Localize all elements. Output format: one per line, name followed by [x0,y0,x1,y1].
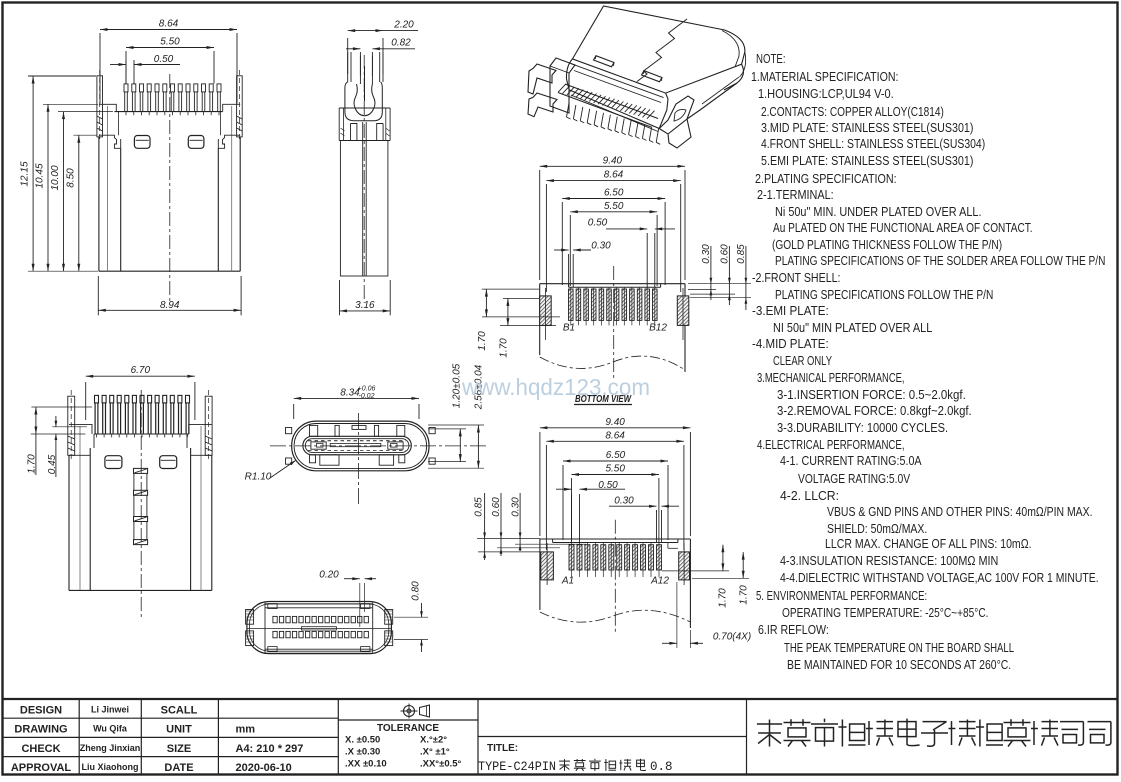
svg-text:1.70: 1.70 [739,585,750,605]
svg-text:OPERATING TEMPERATURE: -25°C~+: OPERATING TEMPERATURE: -25°C~+85°C. [782,606,989,620]
svg-text:5.50: 5.50 [605,464,625,475]
svg-text:0.70(4X): 0.70(4X) [713,631,751,642]
svg-text:5.EMI PLATE: STAINLESS STEEL(S: 5.EMI PLATE: STAINLESS STEEL(SUS301) [761,154,973,168]
svg-text:VOLTAGE RATING:5.0V: VOLTAGE RATING:5.0V [798,472,911,486]
svg-text:4.FRONT SHELL: STAINLESS STEEL: 4.FRONT SHELL: STAINLESS STEEL(SUS304) [761,137,985,151]
svg-text:TYPE-C24PIN: TYPE-C24PIN [478,760,556,774]
svg-text:SHIELD: 50mΩ/MAX.: SHIELD: 50mΩ/MAX. [827,522,927,536]
svg-text:PLATING SPECIFICATIONS FOLLOW: PLATING SPECIFICATIONS FOLLOW THE P/N [775,288,993,302]
svg-text:A4: 210 * 297: A4: 210 * 297 [236,743,304,755]
svg-text:TITLE:: TITLE: [487,743,518,754]
svg-text:3-1.INSERTION FORCE: 0.5~2.0kg: 3-1.INSERTION FORCE: 0.5~2.0kgf. [777,388,966,402]
svg-text:4-3.INSULATION RESISTANCE: 100: 4-3.INSULATION RESISTANCE: 100MΩ MIN [780,554,998,568]
svg-text:5. ENVIRONMENTAL PERFORMANCE:: 5. ENVIRONMENTAL PERFORMANCE: [756,589,927,603]
svg-text:A12: A12 [650,575,669,586]
svg-text:8.64: 8.64 [159,19,179,30]
svg-text:(GOLD PLATING THICKNESS FOLLOW: (GOLD PLATING THICKNESS FOLLOW THE P/N) [772,238,1002,252]
svg-text:2.CONTACTS: COPPER ALLOY(C1814: 2.CONTACTS: COPPER ALLOY(C1814) [761,105,944,119]
svg-text:Ni 50u" MIN. UNDER PLATED OVER: Ni 50u" MIN. UNDER PLATED OVER ALL. [775,205,982,219]
svg-text:NI 50u" MIN PLATED OVER ALL: NI 50u" MIN PLATED OVER ALL [773,321,932,335]
svg-text:+0.06: +0.06 [358,386,376,393]
svg-text:9.40: 9.40 [603,155,623,166]
svg-text:2-1.TERMINAL:: 2-1.TERMINAL: [757,188,834,202]
svg-text:PLATING SPECIFICATIONS OF THE: PLATING SPECIFICATIONS OF THE SOLDER ARE… [775,254,1105,268]
svg-text:DRAWING: DRAWING [14,724,67,736]
svg-text:2020-06-10: 2020-06-10 [236,762,292,774]
svg-text:6.IR REFLOW:: 6.IR REFLOW: [758,623,829,637]
svg-text:CLEAR ONLY: CLEAR ONLY [773,354,832,368]
svg-text:3-3.DURABILITY: 10000 CYCLES.: 3-3.DURABILITY: 10000 CYCLES. [777,421,948,435]
svg-text:Liu Xiaohong: Liu Xiaohong [82,762,139,772]
svg-text:0.50: 0.50 [154,54,174,65]
svg-text:1.70: 1.70 [718,588,729,608]
svg-text:BE MAINTAINED FOR 10 SECONDS A: BE MAINTAINED FOR 10 SECONDS AT 260°C. [787,658,1011,672]
svg-text:UNIT: UNIT [166,724,192,736]
svg-text:-4.MID PLATE:: -4.MID PLATE: [752,337,829,351]
svg-text:3.16: 3.16 [355,300,375,311]
svg-text:0.45: 0.45 [47,454,58,474]
svg-text:0.50: 0.50 [598,480,618,491]
svg-text:0.60: 0.60 [719,244,730,264]
svg-text:8.94: 8.94 [160,300,180,311]
svg-text:.X ±0.30: .X ±0.30 [345,747,380,758]
svg-text:DATE: DATE [164,762,193,774]
svg-text:2.PLATING SPECIFICATION:: 2.PLATING SPECIFICATION: [755,172,897,186]
svg-text:NOTE:: NOTE: [756,52,786,66]
svg-text:DESIGN: DESIGN [20,705,62,717]
svg-text:.X° ±1°: .X° ±1° [420,747,450,758]
svg-text:-0.02: -0.02 [359,393,375,400]
svg-text:R1.10: R1.10 [245,472,272,483]
svg-text:5.50: 5.50 [160,37,180,48]
svg-text:0.85: 0.85 [474,497,485,517]
svg-text:3.MID PLATE: STAINLESS STEEL(S: 3.MID PLATE: STAINLESS STEEL(SUS301) [761,121,973,135]
svg-text:1.HOUSING:LCP,UL94 V-0.: 1.HOUSING:LCP,UL94 V-0. [758,87,894,101]
svg-text:B1: B1 [563,323,575,334]
svg-text:4.ELECTRICAL PERFORMANCE,: 4.ELECTRICAL PERFORMANCE, [757,438,905,452]
svg-text:6.50: 6.50 [604,188,624,199]
svg-text:B12: B12 [649,323,667,334]
svg-text:6.70: 6.70 [131,365,151,376]
svg-text:VBUS & GND PINS AND OTHER PINS: VBUS & GND PINS AND OTHER PINS: 40mΩ/PIN… [827,505,1093,519]
svg-text:APPROVAL: APPROVAL [11,762,72,774]
svg-text:-2.FRONT SHELL:: -2.FRONT SHELL: [752,271,841,285]
svg-text:mm: mm [236,724,256,736]
svg-text:Wu Qifa: Wu Qifa [93,724,128,734]
svg-text:3-2.REMOVAL FORCE: 0.8kgf~2.0k: 3-2.REMOVAL FORCE: 0.8kgf~2.0kgf. [777,404,972,418]
svg-text:CHECK: CHECK [21,743,60,755]
svg-text:Li Jinwei: Li Jinwei [91,705,129,715]
svg-text:.XX ±0.10: .XX ±0.10 [345,759,387,770]
svg-text:0.30: 0.30 [701,244,712,264]
svg-text:0.8: 0.8 [650,760,673,774]
svg-text:10.45: 10.45 [35,163,46,188]
svg-text:X. ±0.50: X. ±0.50 [345,735,380,746]
svg-text:0.85: 0.85 [736,244,747,264]
svg-text:0.30: 0.30 [591,240,611,251]
svg-text:0.30: 0.30 [614,496,634,507]
svg-text:1.20±0.05: 1.20±0.05 [452,363,463,408]
svg-text:5.50: 5.50 [604,201,624,212]
svg-text:1.70: 1.70 [27,454,38,474]
svg-text:Au PLATED ON THE FUNCTIONAL AR: Au PLATED ON THE FUNCTIONAL AREA OF CONT… [773,221,1033,235]
svg-text:LLCR MAX. CHANGE OF ALL PINS:: LLCR MAX. CHANGE OF ALL PINS: 10mΩ. [825,537,1032,551]
svg-text:8.64: 8.64 [604,170,624,181]
svg-text:6.50: 6.50 [606,450,626,461]
svg-text:-3.EMI PLATE:: -3.EMI PLATE: [752,304,829,318]
svg-text:0.80: 0.80 [411,581,422,601]
svg-text:X.°±2°: X.°±2° [420,735,447,746]
svg-text:www.hqdz123.com: www.hqdz123.com [461,374,650,400]
svg-text:0.82: 0.82 [391,38,411,49]
svg-text:9.40: 9.40 [605,417,625,428]
svg-text:1.MATERIAL SPECIFICATION:: 1.MATERIAL SPECIFICATION: [751,70,899,84]
svg-text:Zheng Jinxian: Zheng Jinxian [80,743,141,753]
svg-text:4-1. CURRENT RATING:5.0A: 4-1. CURRENT RATING:5.0A [780,454,922,468]
svg-text:3.MECHANICAL PERFORMANCE,: 3.MECHANICAL PERFORMANCE, [757,371,905,385]
svg-text:12.15: 12.15 [20,161,31,186]
svg-text:0.50: 0.50 [588,218,608,229]
svg-text:10.00: 10.00 [50,165,61,190]
svg-text:.XX°±0.5°: .XX°±0.5° [420,759,462,770]
svg-text:SCALL: SCALL [161,705,198,717]
svg-text:8.50: 8.50 [65,168,76,188]
svg-text:1.70: 1.70 [499,338,510,358]
svg-text:2.20: 2.20 [393,20,414,31]
svg-text:SIZE: SIZE [167,743,191,755]
svg-text:4-4.DIELECTRIC WITHSTAND VOLTA: 4-4.DIELECTRIC WITHSTAND VOLTAGE,AC 100V… [780,571,1099,585]
svg-text:THE PEAK TEMPERATURE ON THE BO: THE PEAK TEMPERATURE ON THE BOARD SHALL [784,641,1014,655]
svg-text:A1: A1 [561,575,574,586]
svg-text:TOLERANCE: TOLERANCE [377,723,439,734]
svg-text:4-2. LLCR:: 4-2. LLCR: [780,489,839,503]
svg-text:8.64: 8.64 [605,430,625,441]
svg-text:0.60: 0.60 [491,497,502,517]
svg-text:0.30: 0.30 [511,497,522,517]
svg-text:1.70: 1.70 [477,331,488,351]
svg-text:0.20: 0.20 [319,569,339,580]
